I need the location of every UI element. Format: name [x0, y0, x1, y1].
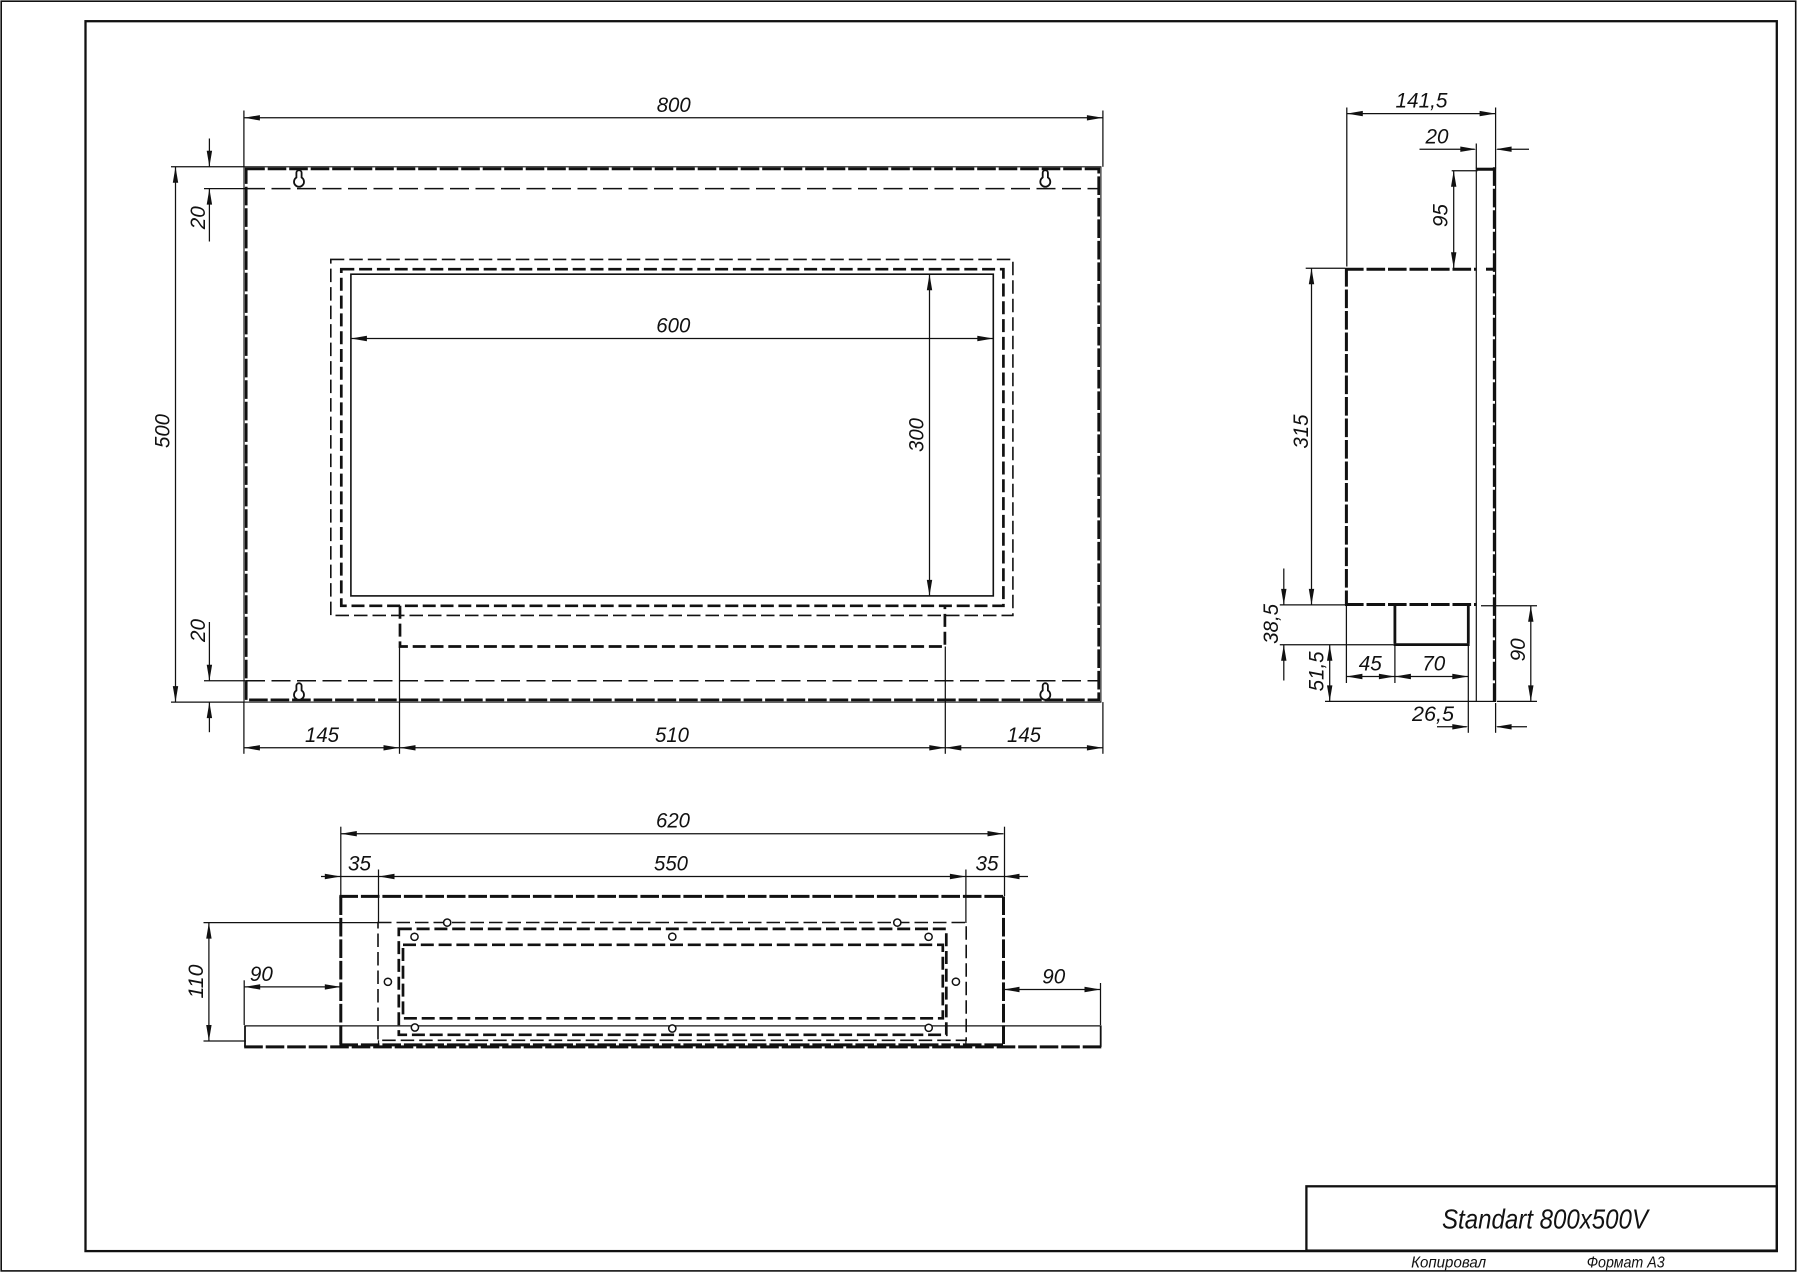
svg-text:550: 550: [654, 852, 688, 876]
svg-text:145: 145: [1007, 723, 1042, 747]
svg-text:70: 70: [1422, 652, 1445, 676]
svg-text:90: 90: [1042, 965, 1065, 989]
svg-text:300: 300: [905, 418, 929, 452]
svg-text:20: 20: [186, 206, 210, 230]
svg-text:620: 620: [656, 809, 690, 833]
svg-text:Формат А3: Формат А3: [1587, 1255, 1665, 1272]
svg-text:35: 35: [348, 852, 372, 876]
svg-text:500: 500: [151, 414, 175, 448]
svg-text:90: 90: [250, 962, 273, 986]
svg-text:315: 315: [1289, 414, 1313, 449]
svg-text:Копировал: Копировал: [1411, 1255, 1486, 1272]
svg-text:110: 110: [184, 964, 208, 998]
svg-text:20: 20: [186, 619, 210, 643]
svg-text:35: 35: [976, 852, 1000, 876]
svg-text:145: 145: [305, 723, 340, 747]
svg-text:26,5: 26,5: [1411, 702, 1455, 726]
svg-text:141,5: 141,5: [1396, 89, 1449, 113]
svg-text:95: 95: [1429, 203, 1453, 227]
svg-text:20: 20: [1425, 124, 1449, 148]
svg-text:51,5: 51,5: [1305, 650, 1329, 691]
svg-text:45: 45: [1359, 652, 1383, 676]
svg-text:90: 90: [1506, 638, 1530, 661]
svg-text:38,5: 38,5: [1259, 603, 1283, 644]
svg-text:800: 800: [657, 93, 691, 117]
svg-text:600: 600: [656, 314, 690, 338]
svg-text:510: 510: [655, 723, 689, 747]
svg-text:Standart 800x500V: Standart 800x500V: [1442, 1204, 1650, 1235]
